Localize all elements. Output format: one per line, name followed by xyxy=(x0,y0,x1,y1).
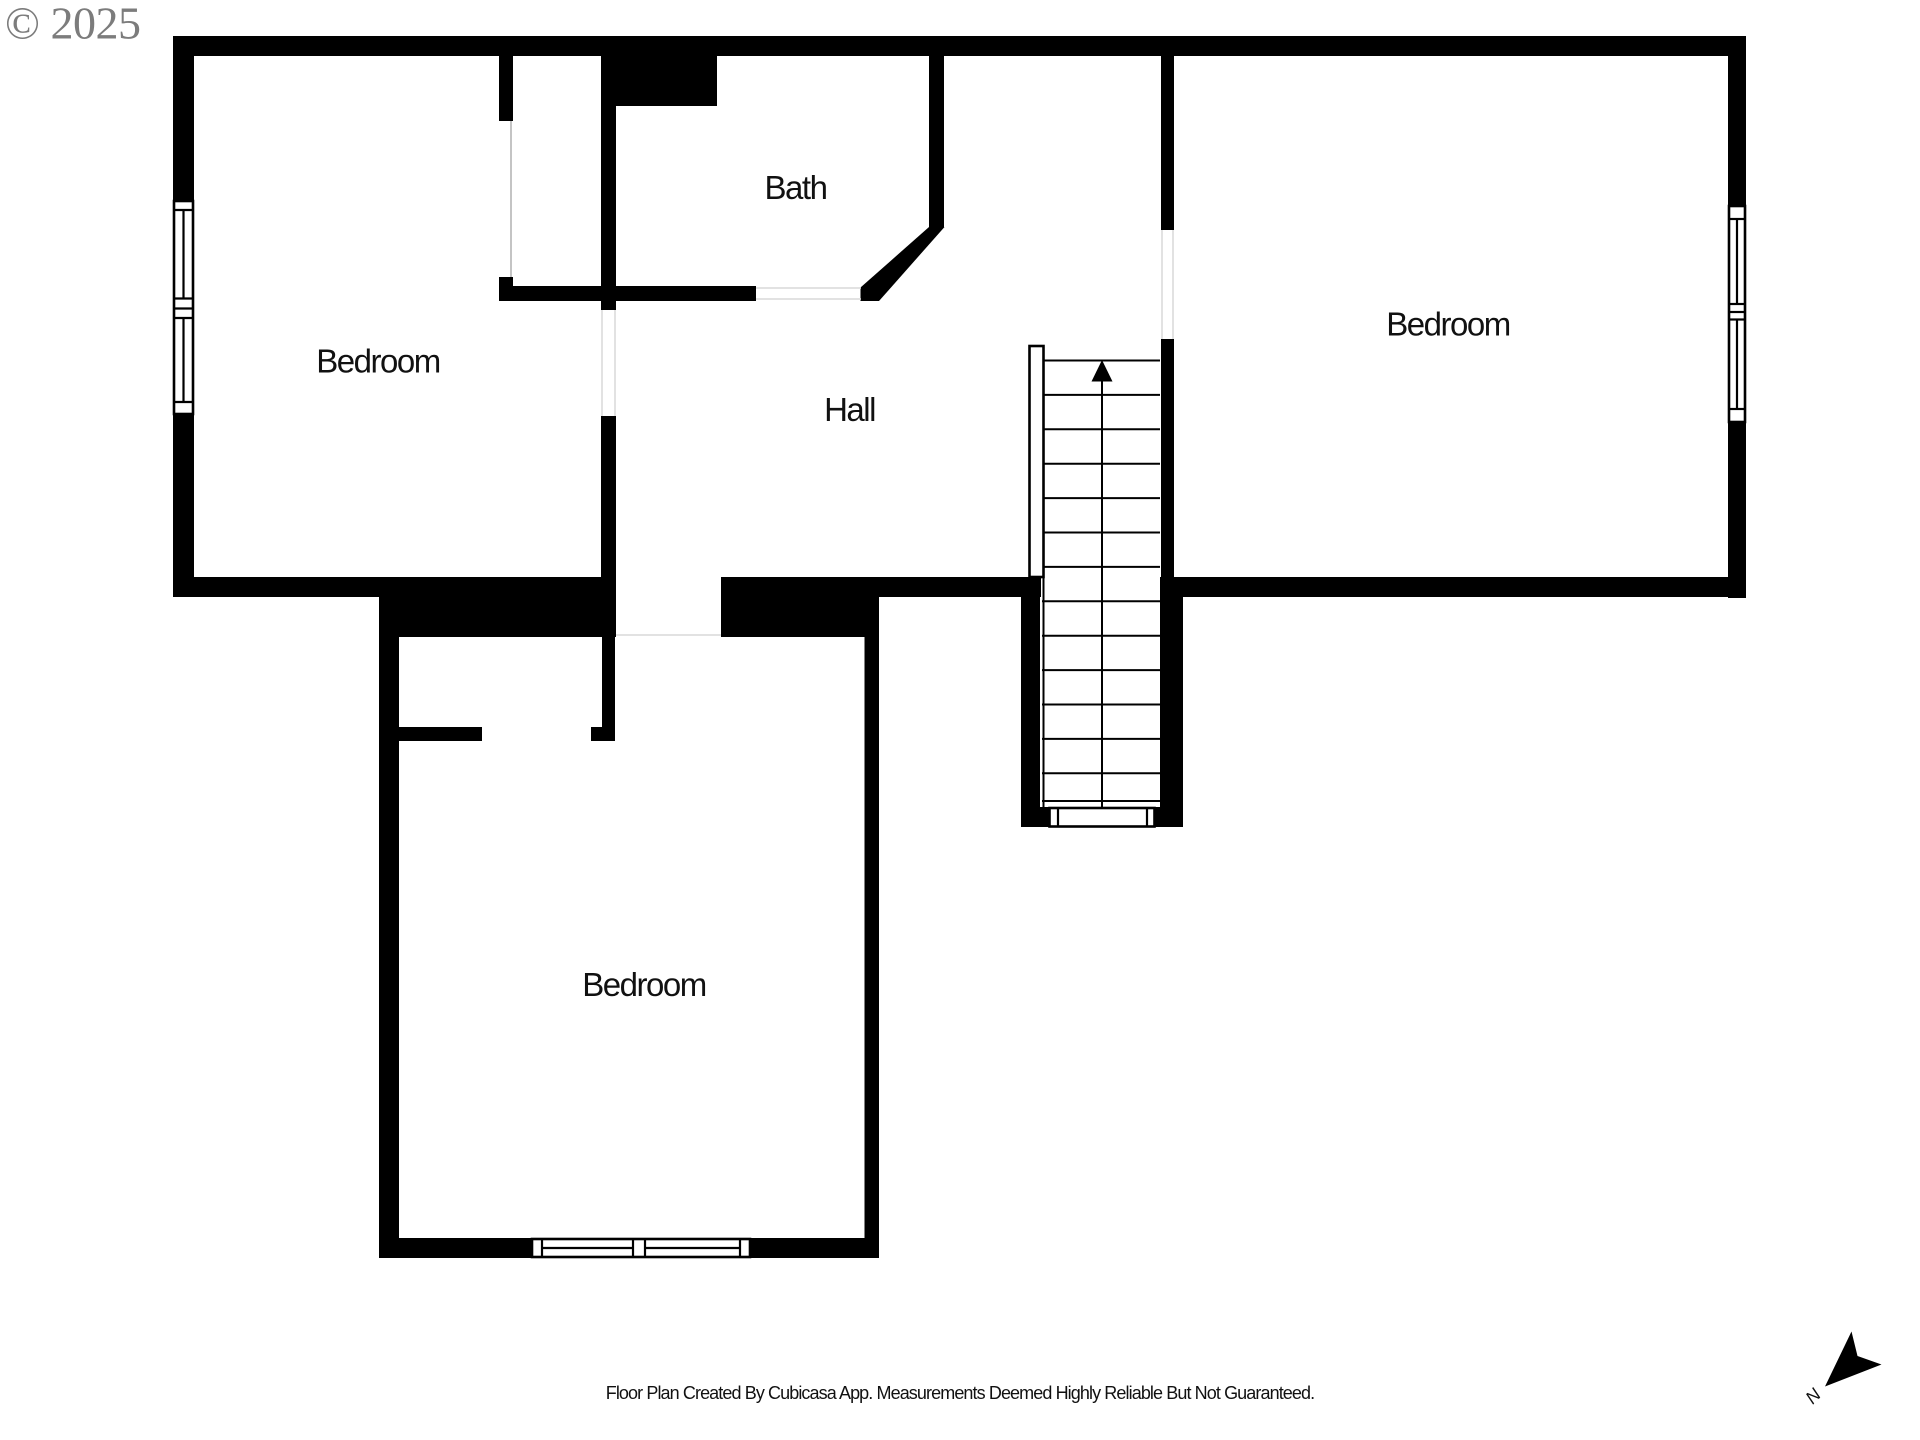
svg-text:Floor Plan Created By Cubicasa: Floor Plan Created By Cubicasa App. Meas… xyxy=(606,1383,1315,1403)
svg-text:© 2025: © 2025 xyxy=(5,0,140,49)
svg-text:Bedroom: Bedroom xyxy=(1386,305,1509,342)
svg-text:Hall: Hall xyxy=(824,391,875,428)
svg-text:Bath: Bath xyxy=(765,169,827,206)
svg-text:Bedroom: Bedroom xyxy=(316,343,439,380)
svg-text:Bedroom: Bedroom xyxy=(582,966,705,1003)
